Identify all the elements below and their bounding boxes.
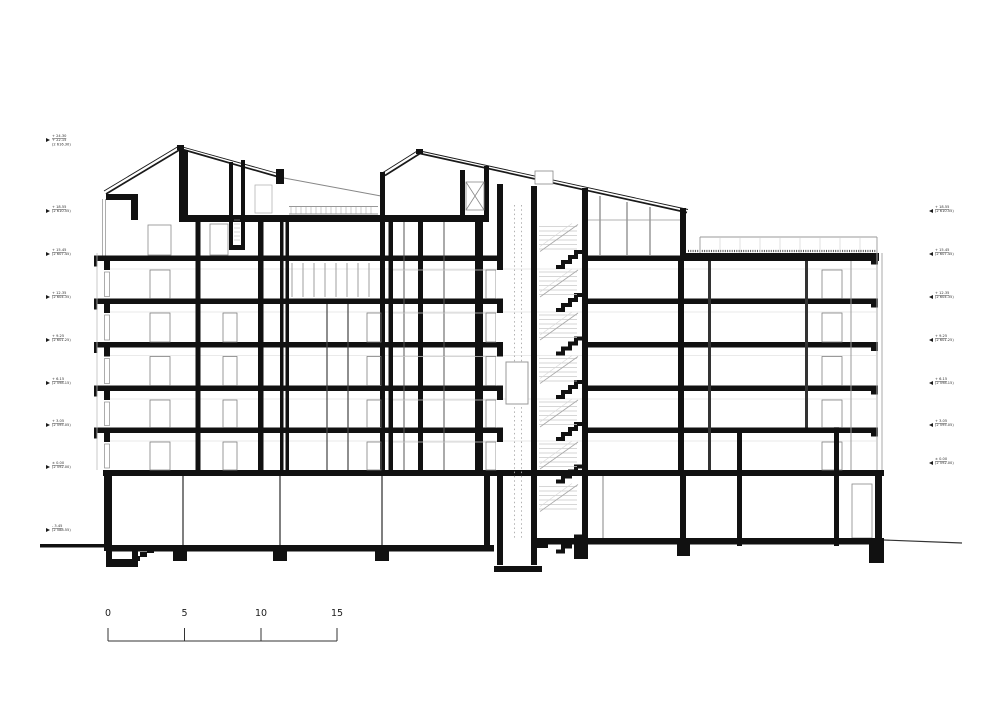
level-arrow-icon: [929, 423, 933, 427]
level-arrow-icon: [46, 138, 50, 142]
level-marker: + 9.25(2 601.25): [46, 334, 86, 350]
scale-label-10: 10: [250, 608, 272, 619]
level-marker: ± 0.00(2 592.00): [46, 461, 86, 477]
level-arrow-icon: [46, 338, 50, 342]
level-marker: + 15.45(2 607.45): [46, 248, 86, 264]
level-arrow-icon: [929, 461, 933, 465]
scale-label-5: 5: [174, 608, 196, 619]
level-arrow-icon: [929, 252, 933, 256]
scale-label-15: 15: [326, 608, 348, 619]
skylight: [535, 171, 553, 184]
level-arrow-icon: [46, 528, 50, 532]
louvre-panel: [466, 182, 484, 210]
level-marker: ± 0.00(2 592.00): [929, 457, 969, 473]
ceiling-lines: [110, 269, 876, 441]
level-marker: + 12.35(2 604.35): [929, 291, 969, 307]
level-arrow-icon: [46, 295, 50, 299]
attic-level: [103, 150, 490, 256]
level-marker: + 6.15(2 598.15): [929, 377, 969, 393]
scale-bar: 0 5 10 15: [100, 608, 352, 652]
green-roof: [686, 237, 879, 261]
left-facade: [97, 253, 111, 470]
walls-left-zone: [196, 166, 490, 470]
level-arrow-icon: [46, 381, 50, 385]
level-arrow-icon: [929, 209, 933, 213]
level-marker: + 3.05(2 595.05): [929, 419, 969, 435]
level-arrow-icon: [46, 252, 50, 256]
level-marker: + 3.05(2 595.05): [46, 419, 86, 435]
level-marker: + 12.35(2 604.35): [46, 291, 86, 307]
level-arrow-icon: [46, 423, 50, 427]
walls-right-zone: [678, 253, 882, 546]
scale-label-0: 0: [97, 608, 119, 619]
glazing-mullions-floor6: [292, 263, 369, 297]
roof-deck-railing: [289, 207, 378, 215]
elevator-pit: [494, 566, 542, 572]
level-arrow-icon: [929, 295, 933, 299]
level-marker: + 15.45(2 607.45): [929, 248, 969, 264]
level-marker: + 6.15(2 598.15): [46, 377, 86, 393]
stair-core: [539, 188, 588, 552]
level-marker: - 3.45(2 588.55): [46, 524, 86, 540]
terrace-railing-right: [700, 237, 877, 253]
level-arrow-icon: [46, 209, 50, 213]
level-marker: + 18.55(2 610.55): [929, 205, 969, 221]
architectural-section-sheet: + 24.30 + 22.15(2 616.30) + 18.55(2 610.…: [0, 0, 1000, 707]
level-arrow-icon: [929, 381, 933, 385]
level-marker: + 18.55(2 610.55): [46, 205, 86, 221]
right-facade-line: [877, 253, 882, 470]
level-arrow-icon: [46, 465, 50, 469]
ground-line-right: [884, 540, 962, 543]
level-arrow-icon: [929, 338, 933, 342]
floor-slabs: [94, 256, 884, 477]
elevator-car: [506, 362, 528, 404]
level-marker: + 24.30 + 22.15(2 616.30): [46, 134, 86, 157]
level-marker: + 9.25(2 601.25): [929, 334, 969, 350]
scale-bar-line: [100, 608, 352, 652]
building-section-drawing: [0, 0, 1000, 707]
